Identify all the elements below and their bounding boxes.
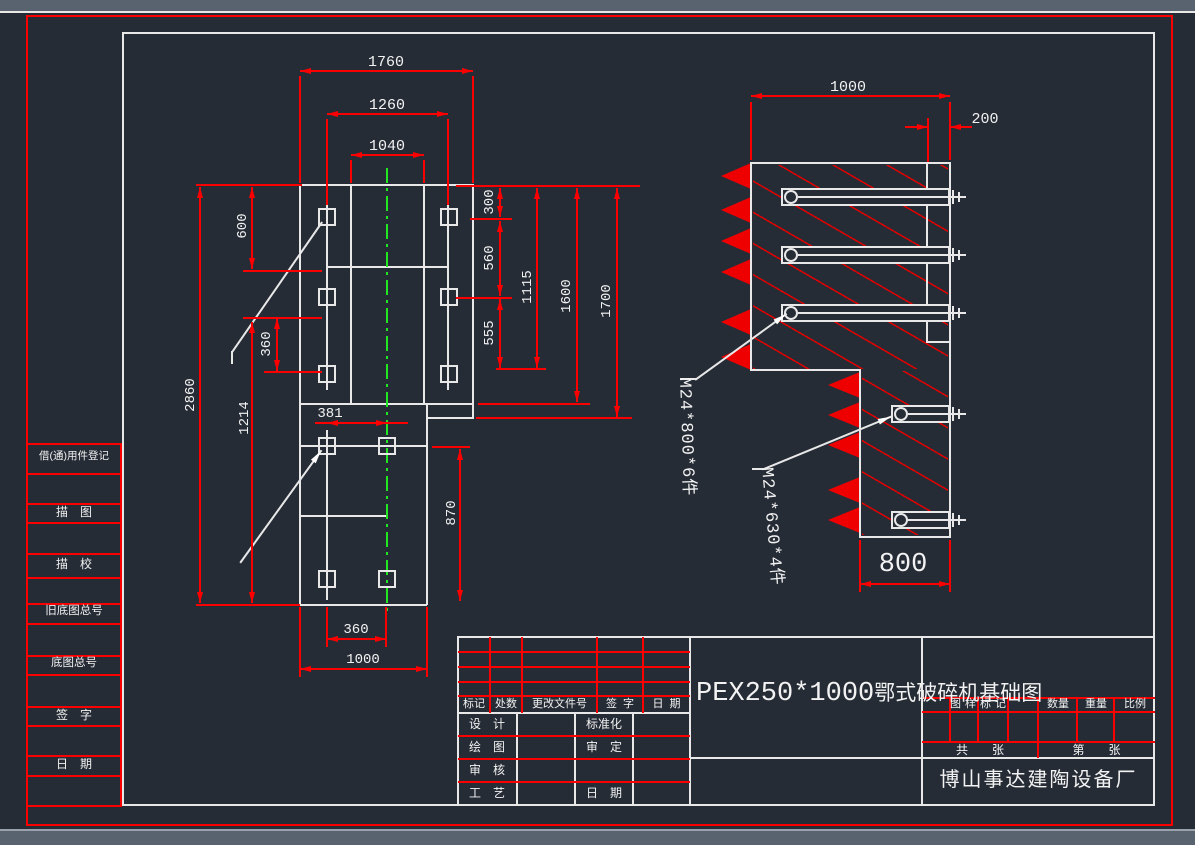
titleblock-line bbox=[458, 781, 690, 783]
sidebar-line bbox=[26, 805, 122, 807]
dim-arrow bbox=[437, 111, 448, 117]
top-chrome-bar bbox=[0, 0, 1195, 11]
section-outline bbox=[859, 536, 951, 538]
dim-text: 555 bbox=[483, 303, 497, 363]
dim-arrow bbox=[376, 420, 387, 426]
sidebar-line bbox=[26, 443, 121, 445]
ext-line bbox=[478, 403, 590, 405]
bottom-chrome-bar bbox=[0, 831, 1195, 845]
dim-text: 1600 bbox=[560, 261, 574, 331]
titleblock-line bbox=[458, 681, 690, 683]
rev-header: 更改文件号 bbox=[522, 699, 597, 710]
anchor-bolt-plan bbox=[440, 208, 458, 226]
sig-label-process: 工 艺 bbox=[458, 787, 516, 799]
dim-text: 300 bbox=[483, 172, 497, 232]
dim-arrow bbox=[274, 360, 280, 371]
dim-arrow bbox=[249, 322, 255, 333]
titleblock-line bbox=[458, 666, 690, 668]
plan-inner-line bbox=[299, 515, 387, 517]
sidebar-label: 旧底图总号 bbox=[28, 606, 120, 618]
sig-label-check: 审 核 bbox=[458, 764, 516, 776]
sidebar-line bbox=[26, 522, 121, 524]
dim-arrow bbox=[274, 318, 280, 329]
drawing-title-name: 鄂式破碎机基础图 bbox=[874, 682, 1042, 705]
dim-arrow bbox=[497, 299, 503, 310]
dim-line bbox=[616, 188, 618, 417]
dim-arrow bbox=[939, 93, 950, 99]
anchor-bolt-plan bbox=[378, 437, 396, 455]
sidebar-line bbox=[26, 725, 121, 727]
rough-edge-triangle bbox=[721, 163, 751, 189]
dim-arrow bbox=[614, 406, 620, 417]
dim-text: 360 bbox=[331, 623, 381, 637]
dim-line bbox=[251, 187, 253, 269]
sidebar-label: 签 字 bbox=[28, 709, 120, 721]
dim-arrow bbox=[457, 590, 463, 601]
section-outline bbox=[949, 162, 951, 538]
drawing-title-model: PEX250*1000 bbox=[696, 679, 874, 709]
ext-line bbox=[196, 184, 302, 186]
titleblock-line bbox=[458, 735, 690, 737]
rough-edge-triangle bbox=[721, 197, 751, 223]
dim-line bbox=[860, 583, 950, 585]
center-line bbox=[386, 168, 388, 612]
plan-inner-line bbox=[423, 184, 425, 405]
bolt-hook-circle bbox=[894, 513, 908, 527]
titleblock-line bbox=[458, 695, 690, 697]
plan-outline bbox=[299, 604, 427, 606]
dim-text: 870 bbox=[445, 483, 459, 543]
dim-text: 1760 bbox=[346, 55, 426, 70]
dim-text: 1040 bbox=[347, 139, 427, 154]
dim-text: 600 bbox=[236, 196, 250, 256]
dim-arrow bbox=[574, 188, 580, 199]
ext-line bbox=[243, 270, 322, 272]
right-header-qty: 数量 bbox=[1039, 699, 1077, 710]
rev-header: 处数 bbox=[490, 699, 522, 710]
dim-text: 360 bbox=[260, 314, 274, 374]
bolt-callout: M24*800*6件 bbox=[674, 377, 704, 497]
sheet-total: 共 张 bbox=[922, 744, 1038, 756]
plan-outline bbox=[299, 184, 301, 605]
company-name: 博山事达建陶设备厂 bbox=[922, 770, 1155, 790]
ext-line bbox=[299, 607, 301, 677]
dim-text: 1115 bbox=[521, 252, 535, 322]
dim-text: 560 bbox=[483, 228, 497, 288]
titleblock-border bbox=[457, 636, 1155, 638]
bolt-thread-tick bbox=[958, 192, 960, 202]
dim-line bbox=[576, 188, 578, 402]
ext-line bbox=[472, 76, 474, 183]
plan-inner-line bbox=[350, 184, 352, 405]
dim-arrow bbox=[249, 592, 255, 603]
dim-arrow bbox=[300, 68, 311, 74]
sidebar-line bbox=[26, 674, 121, 676]
sheet-number: 第 张 bbox=[1038, 744, 1155, 756]
sidebar-line bbox=[26, 553, 121, 555]
right-header-weight: 重量 bbox=[1078, 699, 1114, 710]
ext-line bbox=[496, 368, 546, 370]
rev-header: 日期 bbox=[643, 699, 690, 710]
bolt-center-line bbox=[798, 254, 966, 256]
titleblock-line bbox=[458, 758, 690, 760]
sidebar-label: 描 校 bbox=[28, 558, 120, 570]
ext-line bbox=[456, 297, 512, 299]
ext-line bbox=[432, 446, 470, 448]
rough-edge-triangle bbox=[721, 309, 751, 335]
ext-line bbox=[299, 76, 301, 183]
dim-text: 1700 bbox=[600, 266, 614, 336]
rough-edge-triangle bbox=[828, 372, 860, 398]
rough-edge-triangle bbox=[828, 402, 860, 428]
plan-outline bbox=[427, 417, 473, 419]
bolt-thread-tick bbox=[952, 306, 954, 320]
dim-arrow bbox=[497, 357, 503, 368]
titleblock-line bbox=[458, 651, 690, 653]
sidebar-label: 底图总号 bbox=[28, 658, 120, 670]
dim-arrow bbox=[249, 258, 255, 269]
drawing-title: PEX250*1000鄂式破碎机基础图 bbox=[696, 681, 1042, 708]
section-outline bbox=[750, 369, 861, 371]
bolt-thread-tick bbox=[958, 515, 960, 525]
sig-label-design: 设 计 bbox=[458, 718, 516, 730]
bolt-thread-tick bbox=[952, 407, 954, 421]
ext-line bbox=[949, 540, 951, 592]
dim-arrow bbox=[614, 188, 620, 199]
bolt-hook-circle bbox=[894, 407, 908, 421]
ext-line bbox=[326, 607, 328, 647]
dim-arrow bbox=[534, 357, 540, 368]
sig-label-standard: 标准化 bbox=[575, 718, 633, 730]
ext-line bbox=[243, 317, 322, 319]
ext-line bbox=[949, 102, 951, 160]
sidebar-line bbox=[26, 775, 121, 777]
bolt-center-line bbox=[798, 312, 966, 314]
dim-line bbox=[536, 188, 538, 368]
dim-arrow bbox=[497, 285, 503, 296]
sidebar-line bbox=[26, 623, 121, 625]
ext-line bbox=[196, 604, 300, 606]
anchor-bolt-plan bbox=[378, 570, 396, 588]
rev-header: 签字 bbox=[597, 699, 643, 710]
section-pocket-line bbox=[926, 341, 951, 343]
dim-text: 800 bbox=[858, 552, 948, 579]
dim-arrow bbox=[462, 68, 473, 74]
bolt-center-line bbox=[798, 196, 966, 198]
dim-arrow bbox=[300, 666, 311, 672]
anchor-bolt-plan bbox=[318, 365, 336, 383]
ext-line bbox=[476, 417, 632, 419]
ext-line bbox=[750, 102, 752, 160]
bolt-hook-circle bbox=[784, 190, 798, 204]
sidebar-label: 描 图 bbox=[28, 506, 120, 518]
sidebar-line bbox=[26, 577, 121, 579]
dim-line bbox=[300, 668, 427, 670]
anchor-bolt-plan bbox=[440, 365, 458, 383]
sig-label-approve: 审 定 bbox=[575, 741, 633, 753]
rough-edge-triangle bbox=[721, 228, 751, 254]
bolt-thread-tick bbox=[952, 248, 954, 262]
top-chrome-separator bbox=[0, 11, 1195, 13]
dim-text: 1000 bbox=[323, 653, 403, 667]
dim-text: 2860 bbox=[184, 360, 198, 430]
bolt-thread-tick bbox=[952, 513, 954, 527]
anchor-bolt-plan bbox=[318, 570, 336, 588]
ext-line bbox=[350, 160, 352, 183]
section-outline bbox=[859, 369, 861, 538]
sig-label-draw: 绘 图 bbox=[458, 741, 516, 753]
dim-arrow bbox=[197, 592, 203, 603]
sidebar-label: 日 期 bbox=[28, 758, 120, 770]
bolt-thread-tick bbox=[958, 250, 960, 260]
ext-line bbox=[447, 119, 449, 205]
ext-line bbox=[927, 118, 929, 162]
ext-line bbox=[423, 160, 425, 183]
dim-text: 1214 bbox=[238, 383, 252, 453]
dim-line bbox=[199, 187, 201, 603]
dim-arrow bbox=[327, 111, 338, 117]
sidebar-line bbox=[26, 473, 121, 475]
section-outline bbox=[750, 162, 950, 164]
dim-arrow bbox=[751, 93, 762, 99]
cad-drawing-canvas: 借(通)用件登记 描 图 描 校 旧底图总号 底图总号 签 字 日 期 1760… bbox=[0, 0, 1195, 845]
ext-line bbox=[426, 607, 428, 677]
dim-arrow bbox=[574, 391, 580, 402]
dim-arrow bbox=[860, 581, 871, 587]
bolt-thread-tick bbox=[952, 190, 954, 204]
bolt-thread-tick bbox=[958, 409, 960, 419]
bolt-hook-circle bbox=[784, 248, 798, 262]
ext-line bbox=[326, 119, 328, 205]
sig-label-date: 日 期 bbox=[575, 787, 633, 799]
dim-text: 381 bbox=[305, 407, 355, 421]
anchor-bolt-plan bbox=[318, 288, 336, 306]
sidebar-label: 借(通)用件登记 bbox=[28, 451, 120, 462]
right-header-scale: 比例 bbox=[1115, 699, 1155, 710]
plan-outline bbox=[426, 403, 428, 605]
dim-arrow bbox=[534, 188, 540, 199]
bolt-thread-tick bbox=[958, 308, 960, 318]
dim-arrow bbox=[457, 449, 463, 460]
dim-arrow bbox=[197, 187, 203, 198]
leader-line bbox=[231, 351, 233, 364]
titleblock-line bbox=[690, 757, 1155, 759]
ext-line bbox=[385, 607, 387, 647]
rough-edge-triangle bbox=[721, 259, 751, 285]
dim-arrow bbox=[497, 221, 503, 232]
rough-edge-triangle bbox=[828, 477, 860, 503]
rough-edge-triangle bbox=[828, 507, 860, 533]
dim-text: 200 bbox=[960, 112, 1010, 127]
dim-line bbox=[251, 322, 253, 603]
dim-text: 1000 bbox=[808, 80, 888, 95]
rev-header: 标记 bbox=[458, 699, 490, 710]
dim-text: 1260 bbox=[347, 98, 427, 113]
